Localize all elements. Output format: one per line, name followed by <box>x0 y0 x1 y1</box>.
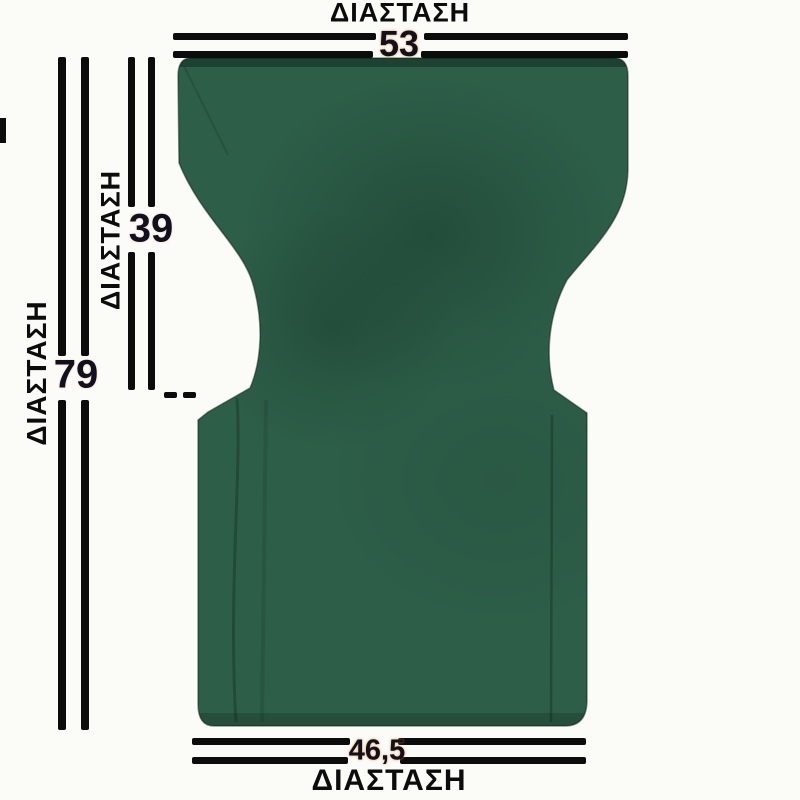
bottom-dim-line-upper-left <box>192 738 350 745</box>
back-height-line-inner-top <box>148 57 155 207</box>
total-height-line-outer-top <box>58 57 66 356</box>
total-height-value: 79 <box>54 353 99 398</box>
top-dim-line-lower-right <box>421 51 628 58</box>
fabric-shape-canvas <box>0 0 800 800</box>
bottom-dim-line-lower-right <box>400 757 586 764</box>
top-dim-line-upper-right <box>424 33 628 40</box>
back-height-line-outer-bottom <box>128 252 135 390</box>
back-height-end-dash-2 <box>183 392 196 398</box>
bottom-dim-line-lower-left <box>192 757 348 764</box>
back-height-line-inner-bottom <box>148 252 155 390</box>
back-height-label: ΔΙΑΣΤΑΣΗ <box>96 170 127 310</box>
edge-crop-artifact <box>0 118 6 143</box>
top-dimension-value: 53 <box>379 23 419 65</box>
bottom-dimension-label: ΔΙΑΣΤΑΣΗ <box>312 764 467 798</box>
back-height-value: 39 <box>129 207 174 252</box>
total-height-line-inner-bottom <box>81 400 89 730</box>
total-height-line-outer-bottom <box>58 400 66 730</box>
top-dim-line-lower-left <box>173 51 373 58</box>
total-height-label: ΔΙΑΣΤΑΣΗ <box>21 300 53 445</box>
bottom-dim-line-upper-right <box>398 738 586 745</box>
back-height-end-dash-1 <box>164 392 177 398</box>
back-height-line-outer-top <box>128 57 135 207</box>
top-dim-line-upper-left <box>173 33 376 40</box>
dimension-diagram: ΔΙΑΣΤΑΣΗ 53 ΔΙΑΣΤΑΣΗ 79 ΔΙΑΣΤΑΣΗ 39 46,5… <box>0 0 800 800</box>
total-height-line-inner-top <box>81 57 89 356</box>
bottom-dimension-value: 46,5 <box>349 735 405 768</box>
